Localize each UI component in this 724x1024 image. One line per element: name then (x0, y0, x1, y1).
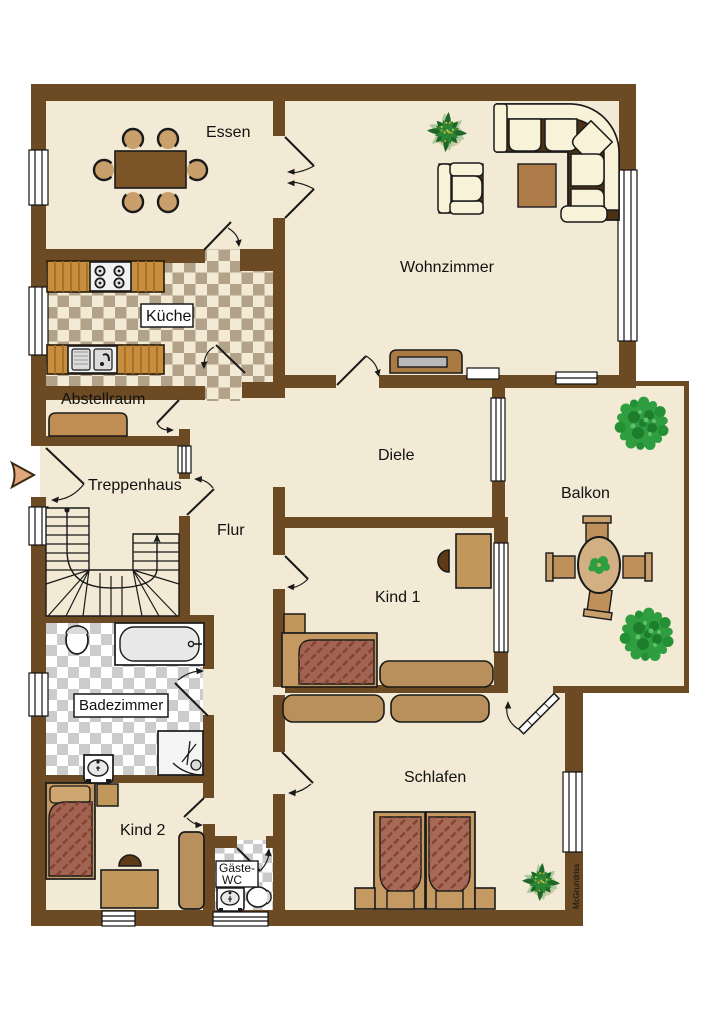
svg-text:Küche: Küche (146, 308, 191, 325)
svg-text:Flur: Flur (217, 522, 245, 539)
svg-text:Badezimmer: Badezimmer (79, 697, 163, 714)
svg-text:Wohnzimmer: Wohnzimmer (400, 259, 495, 276)
svg-text:Kind 2: Kind 2 (120, 822, 165, 839)
svg-text:Abstellraum: Abstellraum (61, 391, 145, 408)
svg-text:Balkon: Balkon (561, 485, 610, 502)
svg-text:Treppenhaus: Treppenhaus (88, 477, 182, 494)
svg-text:Diele: Diele (378, 447, 415, 464)
svg-text:Schlafen: Schlafen (404, 769, 466, 786)
svg-text:Kind 1: Kind 1 (375, 589, 420, 606)
svg-text:McGrundriss: McGrundriss (572, 864, 581, 909)
svg-text:WC: WC (222, 873, 242, 887)
svg-text:Essen: Essen (206, 124, 250, 141)
